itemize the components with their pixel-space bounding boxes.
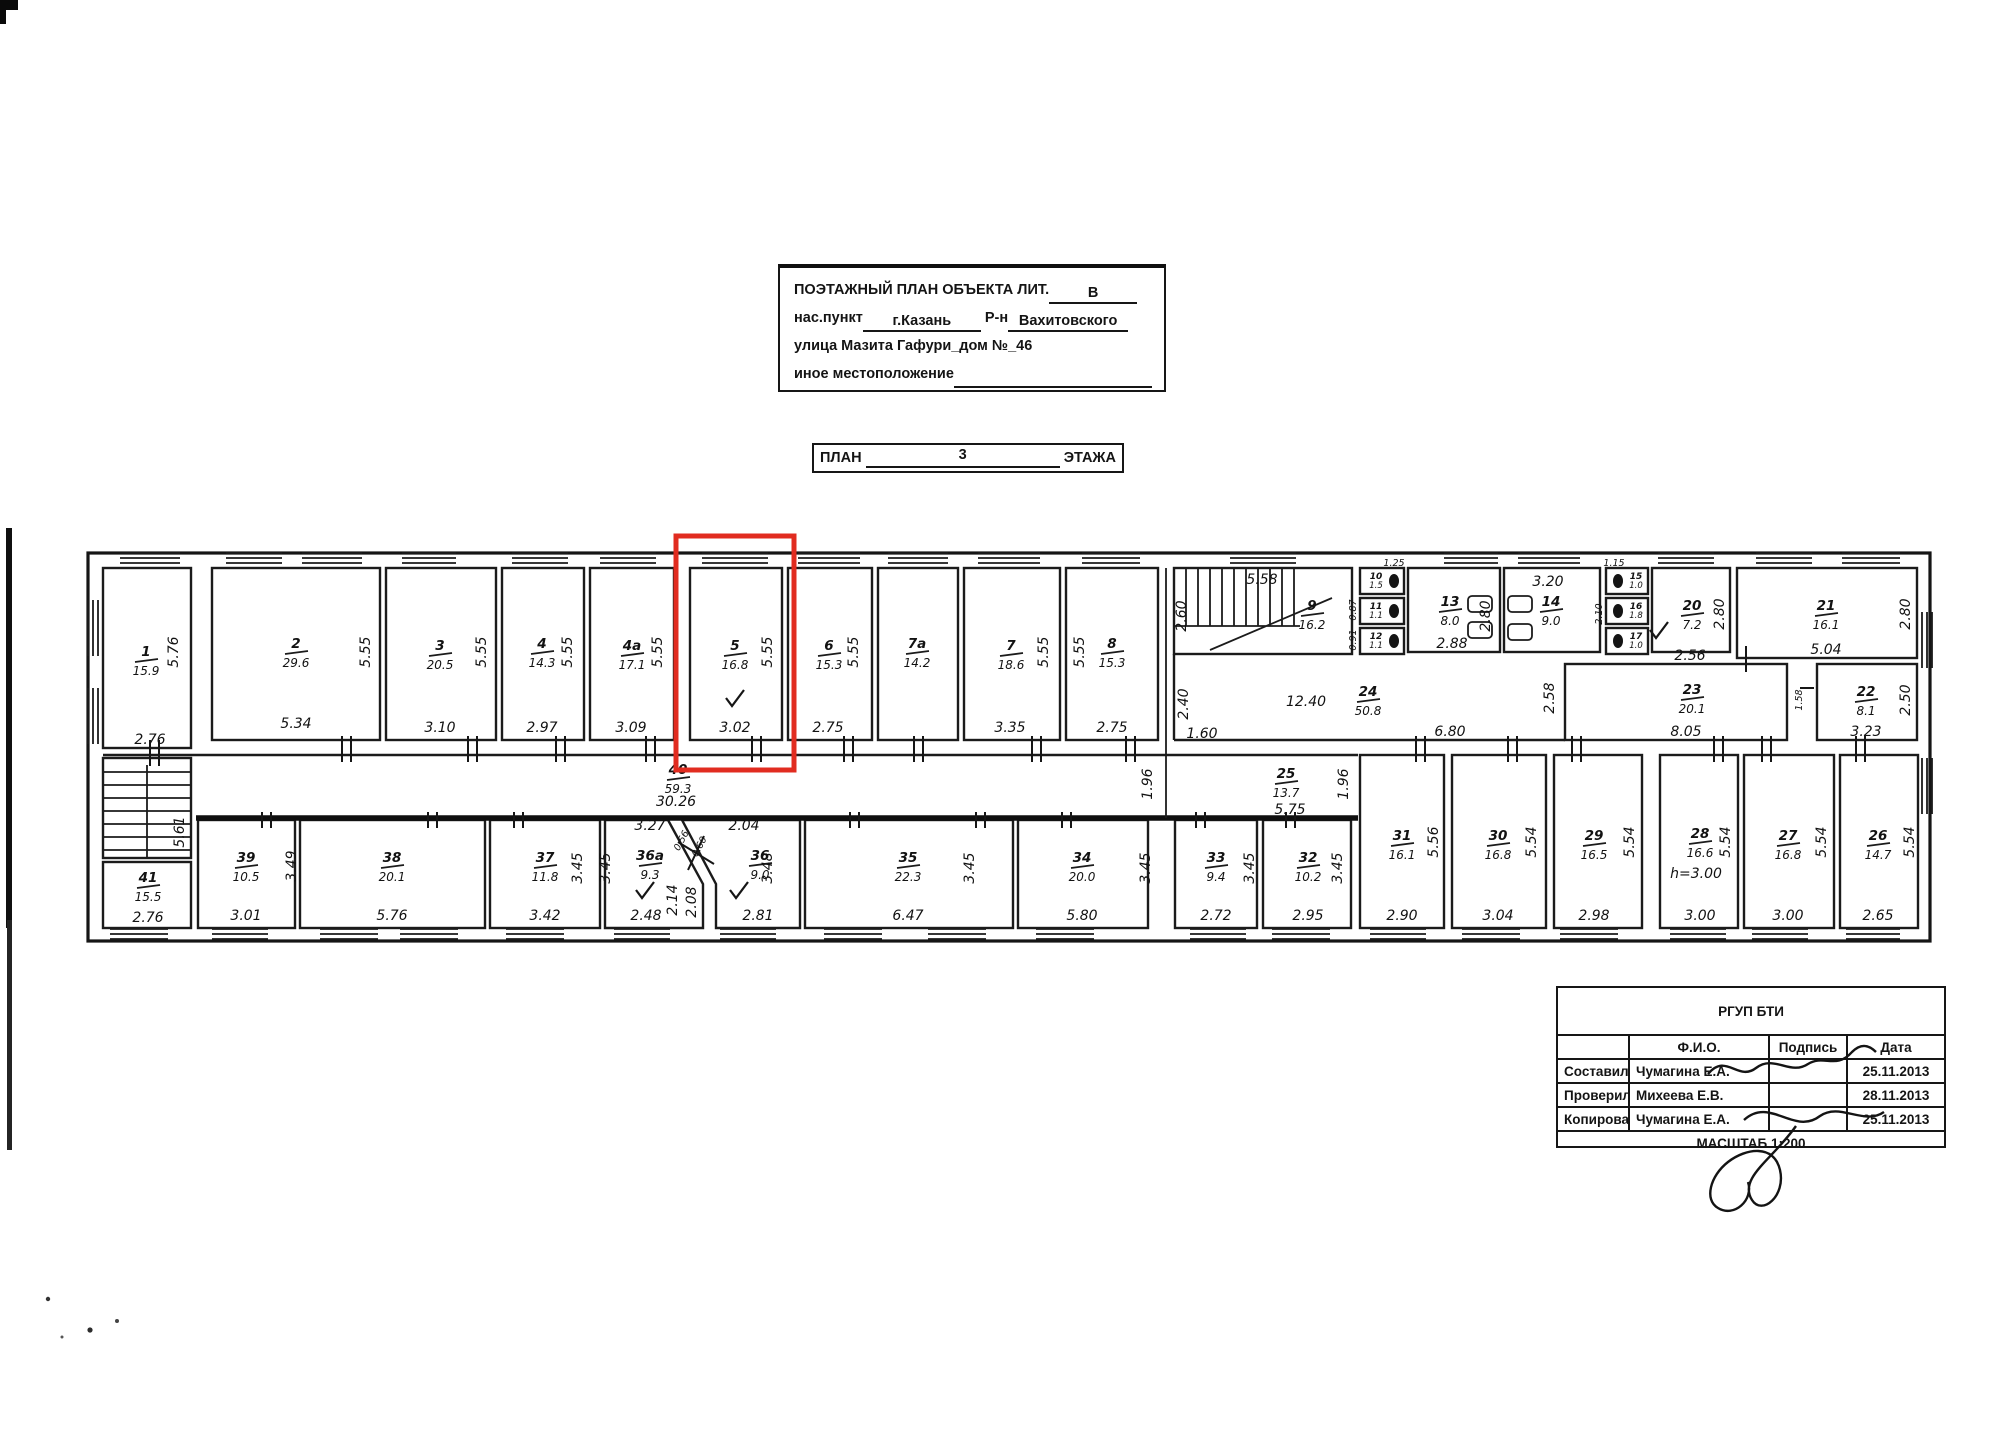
room-label-29: 2916.5 — [1581, 828, 1608, 862]
room-label-17: 171.0 — [1629, 632, 1643, 651]
dim: 5.54 — [1718, 826, 1734, 857]
dim: 5.54 — [1902, 826, 1918, 857]
dim: 0.87 — [1348, 599, 1359, 620]
window-hatches-sides — [88, 600, 1932, 814]
dim: 5.55 — [1072, 636, 1088, 667]
dim: 5.55 — [560, 636, 576, 667]
svg-text:29.6: 29.6 — [283, 656, 310, 670]
stamp-fio-3: Чумагина Е.А. — [1630, 1108, 1770, 1132]
svg-text:10.2: 10.2 — [1295, 870, 1322, 884]
dim: 2.76 — [134, 732, 165, 748]
svg-text:16.2: 16.2 — [1299, 618, 1326, 632]
svg-text:7а: 7а — [908, 636, 927, 652]
svg-text:50.8: 50.8 — [1355, 704, 1382, 718]
stamp-col-fio: Ф.И.О. — [1630, 1036, 1770, 1060]
svg-text:13: 13 — [1441, 594, 1460, 610]
scan-speck — [61, 1336, 64, 1339]
room-label-5: 516.8 — [722, 638, 749, 672]
svg-text:9.0: 9.0 — [1541, 614, 1560, 628]
floor-plan: 115.9 229.6 320.5 414.3 4а17.1 516.8 615… — [0, 0, 2000, 1450]
stamp-sign-1 — [1770, 1060, 1848, 1084]
svg-text:3: 3 — [435, 638, 444, 654]
dim: 3.35 — [994, 720, 1025, 736]
dim: 2.10 — [1594, 603, 1605, 624]
svg-text:37: 37 — [536, 850, 555, 866]
room-label-8: 815.3 — [1099, 636, 1126, 670]
dim: 5.54 — [1524, 826, 1540, 857]
dim-ceiling-height: h=3.00 — [1670, 866, 1722, 882]
svg-text:41: 41 — [138, 870, 158, 886]
washbasin-icon — [1508, 624, 1532, 640]
toilet-icon — [1613, 604, 1623, 618]
check-icon — [636, 882, 654, 898]
room-label-6: 615.3 — [816, 638, 843, 672]
scan-speck — [87, 1327, 92, 1332]
svg-text:20.5: 20.5 — [427, 658, 454, 672]
svg-text:35: 35 — [899, 850, 918, 866]
svg-text:26: 26 — [1869, 828, 1888, 844]
scan-speck — [46, 1297, 50, 1301]
dim: 3.49 — [284, 850, 300, 881]
svg-text:14.2: 14.2 — [904, 656, 931, 670]
stamp-sign-3 — [1770, 1108, 1848, 1132]
room-label-28: 2816.6 — [1687, 826, 1714, 860]
room-label-41: 4115.5 — [135, 870, 162, 904]
svg-text:6: 6 — [824, 638, 833, 654]
svg-text:4: 4 — [536, 636, 546, 652]
dim: 3.20 — [1532, 574, 1563, 590]
scan-artifacts — [0, 0, 119, 1339]
dim: 2.80 — [1712, 598, 1728, 629]
room-label-39: 3910.5 — [233, 850, 260, 884]
svg-text:22: 22 — [1857, 684, 1876, 700]
dim: 5.55 — [474, 636, 490, 667]
svg-text:38: 38 — [383, 850, 402, 866]
stamp-date-3: 25.11.2013 — [1848, 1108, 1944, 1132]
room-label-30: 3016.8 — [1485, 828, 1512, 862]
dim: 2.75 — [1096, 720, 1127, 736]
svg-text:17.1: 17.1 — [619, 658, 646, 672]
room-label-33: 339.4 — [1205, 850, 1228, 884]
outer-wall — [88, 553, 1930, 941]
dim: 2.90 — [1386, 908, 1417, 924]
svg-text:22.3: 22.3 — [895, 870, 922, 884]
room-label-10: 101.5 — [1369, 572, 1383, 591]
svg-text:1.0: 1.0 — [1629, 581, 1643, 591]
svg-text:9.4: 9.4 — [1206, 870, 1225, 884]
room-label-37: 3711.8 — [532, 850, 559, 884]
dim: 2.65 — [1862, 908, 1893, 924]
scan-speck — [115, 1319, 119, 1323]
dim: 2.80 — [1478, 600, 1494, 631]
svg-text:8: 8 — [1107, 636, 1116, 652]
dim: 6.80 — [1434, 724, 1465, 740]
room-label-34: 3420.0 — [1069, 850, 1096, 884]
svg-text:16.8: 16.8 — [1775, 848, 1802, 862]
dim: 5.55 — [760, 636, 776, 667]
dim: 2.75 — [812, 720, 843, 736]
dim: 2.88 — [1436, 636, 1467, 652]
svg-text:29: 29 — [1585, 828, 1604, 844]
dim: 2.56 — [1674, 648, 1705, 664]
room-label-38: 3820.1 — [379, 850, 406, 884]
dim: 1.15 — [1603, 558, 1624, 569]
svg-text:8.0: 8.0 — [1440, 614, 1459, 628]
room-label-23: 2320.1 — [1679, 682, 1706, 716]
svg-text:14.3: 14.3 — [529, 656, 556, 670]
dim: 3.45 — [1138, 852, 1154, 883]
dim: 3.00 — [1684, 908, 1715, 924]
dim: 5.34 — [280, 716, 311, 732]
dim: 3.02 — [719, 720, 750, 736]
stamp-fio-2: Михеева Е.В. — [1630, 1084, 1770, 1108]
toilet-icon — [1389, 604, 1399, 618]
dim: 3.09 — [615, 720, 646, 736]
room-7a — [878, 568, 958, 740]
room-label-21: 2116.1 — [1813, 598, 1840, 632]
room-label-4a: 4а17.1 — [619, 638, 646, 672]
dim: 2.80 — [1898, 598, 1914, 629]
room-label-4: 414.3 — [529, 636, 556, 670]
svg-text:1.1: 1.1 — [1369, 641, 1383, 651]
check-icon — [730, 882, 748, 898]
room-2 — [212, 568, 380, 740]
svg-text:9.3: 9.3 — [640, 868, 659, 882]
dim: 3.45 — [1330, 852, 1346, 883]
dim: 6.47 — [892, 908, 923, 924]
dim: 3.23 — [1850, 724, 1881, 740]
dim: 5.56 — [1426, 826, 1442, 857]
corner-scan-mark-2 — [0, 0, 6, 24]
dim: 2.08 — [684, 886, 700, 917]
svg-text:1.5: 1.5 — [1369, 581, 1383, 591]
svg-text:13.7: 13.7 — [1273, 786, 1300, 800]
svg-text:39: 39 — [237, 850, 256, 866]
stamp-grid: Ф.И.О. Подпись Дата Составил Чумагина Е.… — [1558, 1036, 1944, 1132]
room-walls — [103, 568, 1918, 928]
sanitary-fixtures — [1389, 574, 1623, 648]
room-label-36a: 36а9.3 — [636, 848, 664, 882]
room-label-1: 115.9 — [133, 644, 160, 678]
dim: 3.00 — [1772, 908, 1803, 924]
svg-text:1.0: 1.0 — [1629, 641, 1643, 651]
svg-text:16.8: 16.8 — [1485, 848, 1512, 862]
svg-text:20.0: 20.0 — [1069, 870, 1096, 884]
dim: 1.60 — [1186, 726, 1217, 742]
room-label-35: 3522.3 — [895, 850, 922, 884]
room-label-11: 111.1 — [1369, 602, 1383, 621]
dim: 3.01 — [230, 908, 261, 924]
dim: 8.05 — [1670, 724, 1701, 740]
svg-text:30: 30 — [1489, 828, 1508, 844]
dim: 3.45 — [962, 852, 978, 883]
dim: 5.58 — [1246, 572, 1277, 588]
dim: 3.04 — [1482, 908, 1513, 924]
svg-text:31: 31 — [1393, 828, 1412, 844]
svg-text:33: 33 — [1207, 850, 1226, 866]
svg-text:7.2: 7.2 — [1682, 618, 1701, 632]
dim: 30.26 — [656, 794, 696, 810]
dim: 2.81 — [742, 908, 773, 924]
stamp-fio-1: Чумагина Е.А. — [1630, 1060, 1770, 1084]
dim: 2.50 — [1898, 684, 1914, 715]
window-hatches-bottom — [110, 929, 1900, 939]
stamp-org: РГУП БТИ — [1558, 988, 1944, 1036]
room-label-16: 161.8 — [1629, 602, 1643, 621]
dim: 1.96 — [1336, 768, 1352, 799]
svg-text:1.8: 1.8 — [1629, 611, 1643, 621]
dim: 3.45 — [570, 852, 586, 883]
dim: 3.27 — [634, 818, 665, 834]
dim: 2.72 — [1200, 908, 1231, 924]
room-label-24: 2450.8 — [1355, 684, 1382, 718]
stamp-role-2: Проверил — [1558, 1084, 1630, 1108]
stamp-col-sign: Подпись — [1770, 1036, 1848, 1060]
svg-text:15.3: 15.3 — [1099, 656, 1126, 670]
room-label-13: 138.0 — [1439, 594, 1462, 628]
dim: 5.75 — [1274, 802, 1305, 818]
stamp-col-date: Дата — [1848, 1036, 1944, 1060]
dim: 2.76 — [132, 910, 163, 926]
dim: 3.10 — [424, 720, 455, 736]
svg-text:20: 20 — [1683, 598, 1702, 614]
svg-text:14: 14 — [1542, 594, 1561, 610]
svg-text:28: 28 — [1691, 826, 1710, 842]
stamp-role-3: Копировал — [1558, 1108, 1630, 1132]
svg-text:16.8: 16.8 — [722, 658, 749, 672]
dim: 2.40 — [1176, 688, 1192, 719]
dim: 3.42 — [529, 908, 560, 924]
room-label-14: 149.0 — [1540, 594, 1563, 628]
dim: 2.60 — [1174, 600, 1190, 631]
dim: 1.25 — [1383, 558, 1404, 569]
svg-text:25: 25 — [1277, 766, 1296, 782]
svg-text:34: 34 — [1073, 850, 1092, 866]
svg-text:16.6: 16.6 — [1687, 846, 1714, 860]
washbasin-icon — [1508, 596, 1532, 612]
stamp-sign-2 — [1770, 1084, 1848, 1108]
dim: 2.04 — [728, 818, 759, 834]
dim: 2.58 — [1542, 682, 1558, 713]
dim: 2.95 — [1292, 908, 1323, 924]
dim: 5.55 — [650, 636, 666, 667]
door-ticks — [150, 646, 1865, 828]
room-label-12: 121.1 — [1369, 632, 1383, 651]
dim: 5.76 — [376, 908, 407, 924]
svg-text:15.9: 15.9 — [133, 664, 160, 678]
left-edge-scan-line — [6, 528, 12, 928]
dim: 0.91 — [1348, 629, 1359, 650]
svg-text:8.1: 8.1 — [1856, 704, 1875, 718]
svg-text:1: 1 — [141, 644, 150, 660]
svg-text:20.1: 20.1 — [1679, 702, 1706, 716]
check-icon — [726, 690, 744, 706]
room-label-2: 229.6 — [283, 636, 310, 670]
dim: 5.54 — [1622, 826, 1638, 857]
dim: 2.97 — [526, 720, 557, 736]
svg-text:36а: 36а — [636, 848, 664, 864]
dim: 2.14 — [665, 884, 681, 915]
dim: 12.40 — [1286, 694, 1326, 710]
svg-text:16.5: 16.5 — [1581, 848, 1608, 862]
dim: 5.55 — [846, 636, 862, 667]
dim: 5.55 — [1036, 636, 1052, 667]
svg-text:18.6: 18.6 — [998, 658, 1025, 672]
dim: 5.61 — [172, 816, 188, 847]
svg-text:24: 24 — [1359, 684, 1378, 700]
left-edge-scan-line-2 — [7, 920, 12, 1150]
dim: 2.98 — [1578, 908, 1609, 924]
svg-text:32: 32 — [1299, 850, 1318, 866]
svg-text:5: 5 — [730, 638, 739, 654]
room-label-3: 320.5 — [427, 638, 454, 672]
dim: 5.04 — [1810, 642, 1841, 658]
toilet-icon — [1613, 574, 1623, 588]
room-label-20: 207.2 — [1681, 598, 1704, 632]
svg-text:20.1: 20.1 — [379, 870, 406, 884]
room-label-7: 718.6 — [998, 638, 1025, 672]
dim: 1.96 — [1140, 768, 1156, 799]
svg-text:10.5: 10.5 — [233, 870, 260, 884]
svg-text:21: 21 — [1817, 598, 1836, 614]
svg-text:15.3: 15.3 — [816, 658, 843, 672]
stamp-role-1: Составил — [1558, 1060, 1630, 1084]
svg-text:27: 27 — [1779, 828, 1798, 844]
stamp-date-1: 25.11.2013 — [1848, 1060, 1944, 1084]
stamp-empty-header — [1558, 1036, 1630, 1060]
svg-text:15.5: 15.5 — [135, 890, 162, 904]
room-label-15: 151.0 — [1629, 572, 1643, 591]
room-label-32: 3210.2 — [1295, 850, 1322, 884]
toilet-icon — [1389, 574, 1399, 588]
stamp-date-2: 28.11.2013 — [1848, 1084, 1944, 1108]
stamp-table: РГУП БТИ Ф.И.О. Подпись Дата Составил Чу… — [1556, 986, 1946, 1148]
room-label-26: 2614.7 — [1865, 828, 1892, 862]
room-label-7a: 7а14.2 — [904, 636, 931, 670]
dim: 1.58 — [1794, 689, 1805, 710]
svg-text:11.8: 11.8 — [532, 870, 559, 884]
svg-text:7: 7 — [1006, 638, 1016, 654]
room-label-31: 3116.1 — [1389, 828, 1416, 862]
stamp-scale: МАСШТАБ 1:200 — [1558, 1132, 1944, 1154]
dim: 3.48 — [760, 852, 776, 883]
svg-text:16.1: 16.1 — [1813, 618, 1840, 632]
dim: 3.45 — [598, 852, 614, 883]
dim: 5.55 — [358, 636, 374, 667]
toilet-icon — [1613, 634, 1623, 648]
svg-text:16.1: 16.1 — [1389, 848, 1416, 862]
room-label-25: 2513.7 — [1273, 766, 1300, 800]
toilet-icon — [1389, 634, 1399, 648]
svg-text:9: 9 — [1307, 598, 1316, 614]
svg-text:2: 2 — [291, 636, 300, 652]
svg-text:1.1: 1.1 — [1369, 611, 1383, 621]
dim: 5.76 — [166, 636, 182, 667]
svg-text:4а: 4а — [622, 638, 642, 654]
dim: 5.54 — [1814, 826, 1830, 857]
dim: 2.48 — [630, 908, 661, 924]
svg-text:14.7: 14.7 — [1865, 848, 1892, 862]
room-label-27: 2716.8 — [1775, 828, 1802, 862]
dim: 3.45 — [1242, 852, 1258, 883]
dim: 5.80 — [1066, 908, 1097, 924]
room-label-22: 228.1 — [1855, 684, 1878, 718]
svg-text:23: 23 — [1683, 682, 1702, 698]
